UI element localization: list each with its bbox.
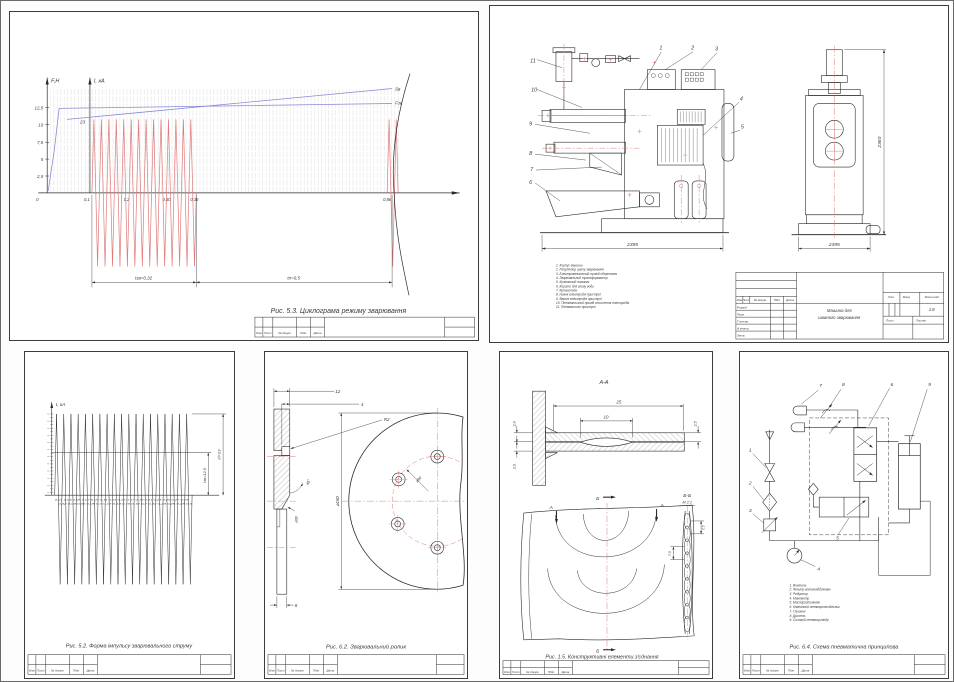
tb-mass: Маса [903,295,911,299]
callout-2: 2 [748,480,752,486]
pneumatic-circuit [762,404,930,575]
dim-side-width: 2395 [626,242,638,248]
callout-4: 4 [740,96,743,102]
tb-row: Т.контр. [737,320,749,324]
tb-label: Изм [737,298,743,302]
sheet-cyclogram: F,H I, кА 12,5 10 7,5 5 2,5 23 0 0,1 0,2… [9,11,479,341]
callout-4: 4 [817,566,820,572]
dim-t2: 2,0 [512,463,516,470]
callout-9: 9 [529,121,532,127]
tb-sheet: Лист [885,319,894,323]
x-tick: 0,30 [162,197,171,202]
callout-6: 6 [891,382,894,388]
dim-pitch-right: 7,5 [702,525,706,530]
joint-section-markers: А А Б Б [549,496,665,655]
strip-label: Підп. [548,670,555,674]
f-tick: 5 [41,157,44,162]
sheet-joint: А-А 25 10 2,0 [499,351,713,679]
tb-sheets: Листів [915,319,926,323]
muffler-symbol-2 [791,423,804,432]
callout-5: 5 [836,536,839,542]
dim-holes: ⌀90 [414,475,423,484]
tb-title-1: Машина для [827,308,853,313]
dim-amplitude: Iд=23 [217,449,222,460]
tb-row: Розроб. [737,306,748,310]
x-tick: 0 [36,197,39,202]
dim-radius: R2 [384,417,390,422]
f-tick: 7,5 [37,140,44,145]
dim-weld-time: tзв=0,32 [135,275,152,280]
callout-7: 7 [530,167,534,173]
axis-f-label: F,H [51,79,59,85]
callout-6: 6 [529,180,533,186]
marker-a-right: А [659,503,664,509]
title-strip: Изм Лист № докум. Підп. Дата [255,317,475,337]
callout-1: 1 [749,448,752,454]
part-item: 9. Силовий пневмоциліндр [790,618,829,622]
dim-rms: Iзв=12,5 [202,467,207,483]
strip-label: № докум. [291,668,304,672]
strip-label: Лист [511,670,520,674]
x-tick: 0,86 [383,197,392,202]
strip-label: Підп. [300,331,307,335]
callout-9: 9 [928,382,931,388]
machine-titleblock: Изм Лист № докум. Підп. Дата Розроб. Про… [736,272,944,339]
pulse-drawing: I, кА 0,01 0,03 0,05 0,07 0,09 0,11 0,13… [25,352,234,678]
strip-label: Лист [36,669,45,673]
tb-scale-label: Масштаб [925,295,939,299]
marker-b-top: Б [596,496,600,502]
pneumatic-drawing: 1 2 3 4 5 6 7 8 9 1. Вентиль 2. Фільтр-в… [740,352,948,678]
throttle-symbols [820,404,841,434]
pulse-x-ticks: 0,01 0,03 0,05 0,07 0,09 0,11 0,13 0,15 … [55,500,194,506]
strip-label: Підп. [788,668,795,672]
machine-side-view [540,48,734,233]
dim-face: 4 [361,402,364,407]
strip-label: Изм [744,668,750,672]
tb-label: Підп. [774,298,781,302]
callout-1: 1 [659,46,662,52]
axis-i-label: I, кА [94,79,105,85]
callout-2: 2 [690,46,694,52]
part-item: 11. Пневматичні пристрої [556,305,597,309]
tb-row: Н.контр. [737,327,750,331]
tb-lit: Лит. [887,295,895,299]
current-peak-label: 23 [79,119,85,124]
strip-label: Дата [325,668,334,672]
section-label: А-А [598,380,608,386]
strip-label: Підп. [73,669,80,673]
drawing-board: F,H I, кА 12,5 10 7,5 5 2,5 23 0 0,1 0,2… [0,0,954,682]
joint-section-view [533,391,685,485]
f-tick: 2,5 [36,174,44,179]
dim-hub: 8 [295,603,298,608]
pulse-axis-label: I, кА [56,402,66,408]
strip-label: Підп. [313,668,320,672]
x-tick-row-1: 0,01 0,03 0,05 0,07 0,09 0,11 0,13 0,15 … [55,500,190,502]
figure-caption: Рис. 1.5. Конструктивні елементи з'єднан… [545,655,658,661]
joint-panel-view [521,505,694,640]
machine-front-centerlines [826,46,842,238]
dim-pause-time: tп=0,5 [287,275,300,280]
dim-front-width: 2395 [828,242,840,248]
dim-outer: ⌀160 [335,496,340,507]
strip-label: № докум. [51,669,64,673]
callout-5: 5 [741,124,745,130]
title-strip: Изм Лист № докум. Підп. Дата [28,655,231,675]
dim-angle: 45° [305,478,312,486]
dim-t1: 2,0 [512,420,516,427]
cyclogram-drawing: F,H I, кА 12,5 10 7,5 5 2,5 23 0 0,1 0,2… [10,12,478,340]
dim-25: 25 [615,400,621,405]
cyclogram-dimensions: tзв=0,32 tп=0,5 [92,195,392,287]
detail-label: Б-Б [683,493,692,499]
joint-drawing: А-А 25 10 2,0 [500,352,712,678]
pneumatic-parts-list: 1. Вентиль 2. Фільтр-вологовідділювач 3.… [789,583,841,622]
callout-10: 10 [531,87,537,93]
strip-label: Дата [313,331,322,335]
strip-label: Изм [269,668,275,672]
f-tick: 10 [38,122,43,127]
tb-title-2: шовного зварювання [818,315,861,320]
valve-symbol [765,463,775,481]
sheet-machine: 2395 2395 2360 11 10 9 [489,5,949,343]
title-strip: Изм Лист № докум. Підп. Дата [268,655,464,675]
tb-label: № докум. [754,298,767,302]
tb-scale-value: 1:8 [929,307,935,312]
f-tick: 12,5 [35,105,44,110]
sheet-pulse: I, кА 0,01 0,03 0,05 0,07 0,09 0,11 0,13… [24,351,235,679]
tb-label: Дата [785,298,794,302]
tb-row: Затв. [737,334,745,338]
figure-caption: Рис. 6.2. Зварювальний ролик [326,644,406,651]
strip-label: Дата [560,670,569,674]
figure-caption: Рис. 5.2. Форма імпульсу зварювального с… [66,644,194,650]
strip-label: Лист [276,668,285,672]
strip-label: № докум. [766,668,779,672]
figure-caption: Рис. 5.3. Циклограма режиму зварювання [271,308,407,315]
dim-height: 2360 [877,136,883,148]
tb-row: Пров. [737,313,745,317]
roller-drawing: 12 4 R2 45° ⌀30 8 [265,352,467,678]
x-tick: 0,1 [84,197,90,202]
marker-a-left: А [549,505,554,511]
dim-width: 12 [335,389,340,394]
strip-label: Лист [263,331,272,335]
strip-label: Изм [256,331,262,335]
strip-label: Дата [800,668,809,672]
dim-t3: 2,5 [694,420,698,427]
pulse-dimensions: Iд=23 Iзв=12,5 [192,414,226,495]
dim-pitch-left: 7,5 [668,551,672,556]
muffler-symbol-1 [793,406,806,415]
callout-3: 3 [749,508,752,514]
callout-8: 8 [842,382,845,388]
x-tick-row-2: 0,02 0,04 0,06 0,08 0,1 0,12 0,14 0,16 0… [58,503,193,506]
tb-label: Лист [742,298,751,302]
machine-parts-list: 1. Корпус машини 2. Регулятор циклу звар… [555,263,630,309]
machine-drawing: 2395 2395 2360 11 10 9 [490,6,948,342]
strip-label: Изм [504,670,510,674]
dim-10: 10 [604,414,609,419]
callout-3: 3 [715,47,718,53]
callout-8: 8 [529,151,532,157]
sheet-pneumatic: 1 2 3 4 5 6 7 8 9 1. Вентиль 2. Фільтр-в… [739,351,949,679]
machine-callouts: 11 10 9 8 7 6 1 2 3 4 5 [529,46,745,201]
joint-detail-view: Б-Б М 2:1 7,5 7,5 [668,493,706,640]
dim-bore: ⌀30 [294,515,299,523]
strip-label: Изм [29,669,35,673]
x-tick: 0,36 [190,197,199,202]
strip-label: № докум. [526,670,539,674]
s-line-label: Sв [395,87,401,92]
title-strip: Изм Лист № докум. Підп. Дата [743,655,945,675]
callout-11: 11 [530,59,536,65]
figure-caption: Рис. 6.4. Схема пневматична принципова [790,645,899,651]
strip-label: Дата [85,669,94,673]
sheet-roller: 12 4 R2 45° ⌀30 8 [264,351,468,679]
strip-label: Лист [751,668,760,672]
detail-scale: М 2:1 [683,501,692,505]
machine-front-view [792,50,886,235]
title-strip: Изм Лист № докум. Підп. Дата [503,661,709,675]
callout-7: 7 [819,383,822,389]
strip-label: № докум. [278,331,291,335]
roller-face-view [342,408,467,594]
pneumatic-callouts: 1 2 3 4 5 6 7 8 9 [748,382,931,572]
